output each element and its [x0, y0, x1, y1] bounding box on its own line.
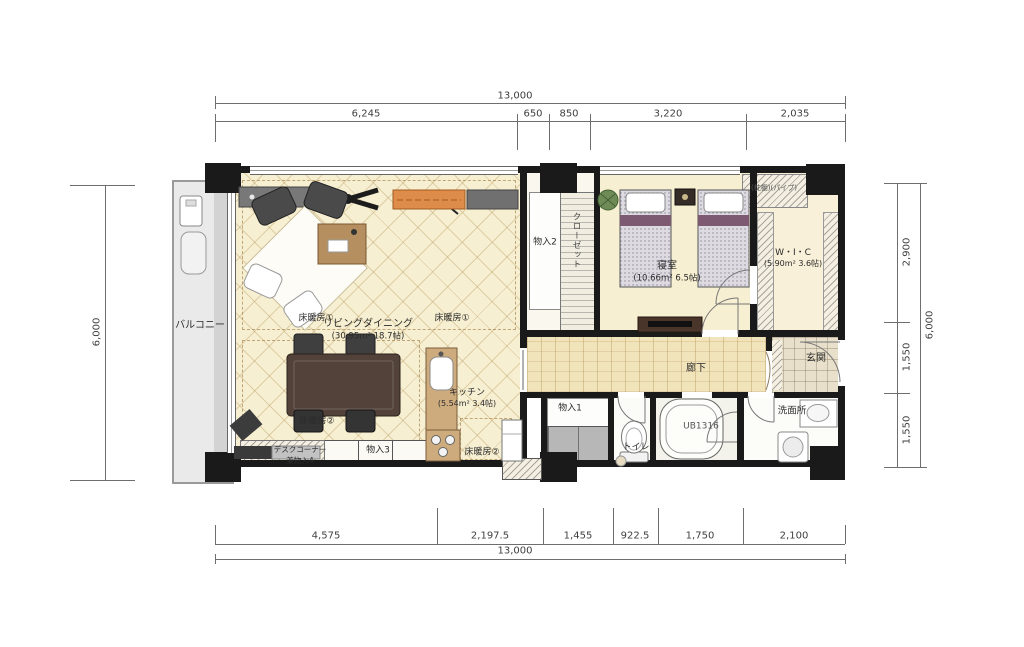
entrance-label: 玄関 — [806, 353, 826, 365]
kitchen-stove — [426, 430, 460, 461]
dining-chair — [294, 334, 323, 356]
room-name: W・I・C — [764, 245, 822, 258]
floor-heating2-label: 床暖房② — [464, 448, 499, 459]
room-name: リビングダイニング — [323, 315, 413, 330]
desk-corner-line1: デスクコーナー — [274, 444, 327, 455]
floor-plan-canvas: 13,000 6,245 650 850 3,220 2,035 4,575 2… — [0, 0, 1024, 647]
storage2-label: 物入2 — [533, 238, 557, 249]
wic-shelf-note: (枕棚)(パイプ) — [751, 184, 797, 192]
room-name: 寝室 — [633, 257, 700, 272]
balcony-label: バルコニー — [175, 320, 225, 332]
coffee-table — [318, 224, 366, 264]
hallway-label: 廊下 — [686, 363, 706, 375]
room-area: (30.95m² 18.7帖) — [323, 330, 413, 342]
toilet-label: トイレ — [622, 443, 649, 454]
room-area: (5.90m² 3.6帖) — [764, 258, 822, 269]
counter-cabinet — [467, 190, 518, 209]
dining-chair — [346, 410, 375, 432]
desk-unit — [234, 446, 272, 459]
room-name: キッチン — [438, 385, 496, 398]
desk-corner-line2: 兼物入4 — [274, 455, 327, 466]
dining-table — [287, 354, 400, 416]
room-area: (5.54m² 3.4帖) — [438, 398, 496, 409]
desk-chair — [230, 409, 263, 441]
kitchen-label: キッチン (5.54m² 3.4帖) — [438, 385, 496, 409]
balcony-slop-sink — [180, 196, 202, 226]
bedroom-label: 寝室 (10.66m² 6.5帖) — [633, 257, 700, 284]
wic-label: W・I・C (5.90m² 3.6帖) — [764, 245, 822, 269]
nightstand — [675, 189, 695, 205]
living-dining-label: リビングダイニング (30.95m² 18.7帖) — [323, 315, 413, 342]
furniture-layer — [0, 0, 1024, 647]
bedroom-tv-board — [638, 317, 702, 332]
refrigerator — [502, 420, 522, 461]
unit-bath-label: UB1316 — [683, 422, 719, 433]
tv-board — [393, 190, 465, 209]
balcony-chair — [181, 232, 206, 274]
room-area: (10.66m² 6.5帖) — [633, 272, 700, 284]
entrance-step-line — [766, 352, 770, 390]
closet-label: クローゼット — [570, 212, 582, 269]
washroom-label: 洗面所 — [778, 405, 807, 416]
desk-corner-label: デスクコーナー 兼物入4 — [274, 444, 327, 466]
storage1-label: 物入1 — [558, 404, 582, 415]
bedroom-door — [702, 298, 738, 334]
storage3-label: 物入3 — [366, 446, 390, 457]
plant — [598, 190, 618, 210]
toilet-door — [618, 396, 645, 423]
floor-heating2-label: 床暖房② — [299, 417, 334, 428]
floor-heating1-label: 床暖房① — [434, 314, 469, 325]
bed — [698, 190, 749, 287]
washing-machine — [778, 432, 808, 462]
washroom-door — [748, 396, 774, 422]
